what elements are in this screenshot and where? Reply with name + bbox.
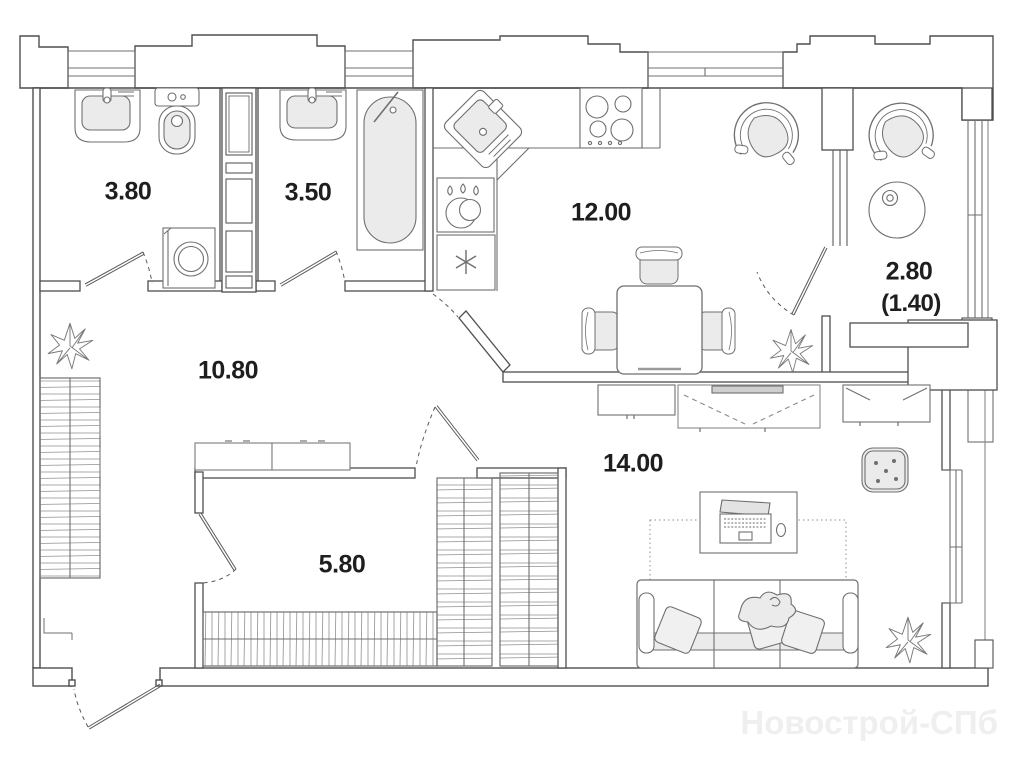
round-table-icon <box>869 182 925 238</box>
wall-pier <box>413 36 648 88</box>
facade-block <box>968 390 993 442</box>
dining-table-icon <box>617 286 702 374</box>
room-label-balcony-reduced: (1.40) <box>881 290 941 318</box>
entrance-jamb <box>69 680 75 686</box>
room-label-balcony: 2.80 <box>886 258 933 287</box>
hallway-fixtures <box>40 323 350 578</box>
kitchen-corner-sink-icon <box>442 85 527 170</box>
wardrobe-hangers-icon <box>437 478 492 666</box>
room-label-living-room: 14.00 <box>603 450 663 479</box>
facade-block <box>975 640 993 668</box>
sink-icon <box>280 88 346 140</box>
bathroom-2-fixtures <box>280 88 423 250</box>
balcony-fixtures <box>866 100 937 238</box>
dresser <box>598 385 675 419</box>
wardrobe-hangers-icon <box>40 378 100 578</box>
tv-stand-icon <box>678 385 820 432</box>
wardrobe-hangers-icon <box>203 612 437 666</box>
door-swing-icon <box>433 294 458 317</box>
upper-cabinet <box>195 441 350 470</box>
right-facade <box>962 120 993 668</box>
bathtub-icon <box>357 90 423 250</box>
left-wall <box>33 88 40 668</box>
door-swing-icon <box>416 406 479 468</box>
vent-shaft-icon <box>222 88 256 292</box>
room-label-bathroom-2: 3.50 <box>285 179 332 208</box>
door-swing-icon <box>74 684 161 729</box>
window-icon <box>345 51 413 88</box>
bottom-wall <box>160 668 988 686</box>
pouf-icon <box>862 448 908 492</box>
dressing-room-fixtures <box>203 473 558 666</box>
door-swing-icon <box>280 251 345 286</box>
laptop-icon <box>720 500 771 543</box>
bottom-wall-left-stub <box>33 668 72 686</box>
vestibule-lines <box>44 618 72 640</box>
window-icon <box>68 51 135 88</box>
living-room-window <box>942 470 962 603</box>
room-label-kitchen: 12.00 <box>571 199 631 228</box>
wall-pier <box>135 35 345 88</box>
window-icon <box>648 52 783 88</box>
room-label-hallway: 10.80 <box>198 357 258 386</box>
toilet-icon <box>155 88 199 154</box>
door-swing-icon <box>199 513 236 583</box>
room-label-bathroom-1: 3.80 <box>105 178 152 207</box>
floor-plan: 3.80 3.50 12.00 2.80 (1.40) 10.80 5.80 1… <box>0 0 1012 768</box>
water-heater-icon <box>437 178 494 232</box>
door-swing-icon <box>757 150 847 315</box>
door-swing-icon <box>85 252 152 286</box>
wall-pier <box>20 36 68 88</box>
kitchen-fixtures <box>433 85 803 374</box>
mouse-icon <box>777 524 786 537</box>
floor-plan-drawing <box>0 0 1012 768</box>
wardrobe-hangers-icon <box>500 473 558 666</box>
washing-machine-icon <box>163 228 215 288</box>
sink-icon <box>75 88 140 142</box>
room-label-dressing-room: 5.80 <box>319 551 366 580</box>
sofa-icon <box>637 580 858 668</box>
vent-icon <box>437 235 495 290</box>
watermark: Новострой-СПб <box>740 704 998 742</box>
tv-stand-icon <box>843 385 930 426</box>
desk-icon <box>700 492 797 553</box>
stove-icon <box>580 88 642 148</box>
